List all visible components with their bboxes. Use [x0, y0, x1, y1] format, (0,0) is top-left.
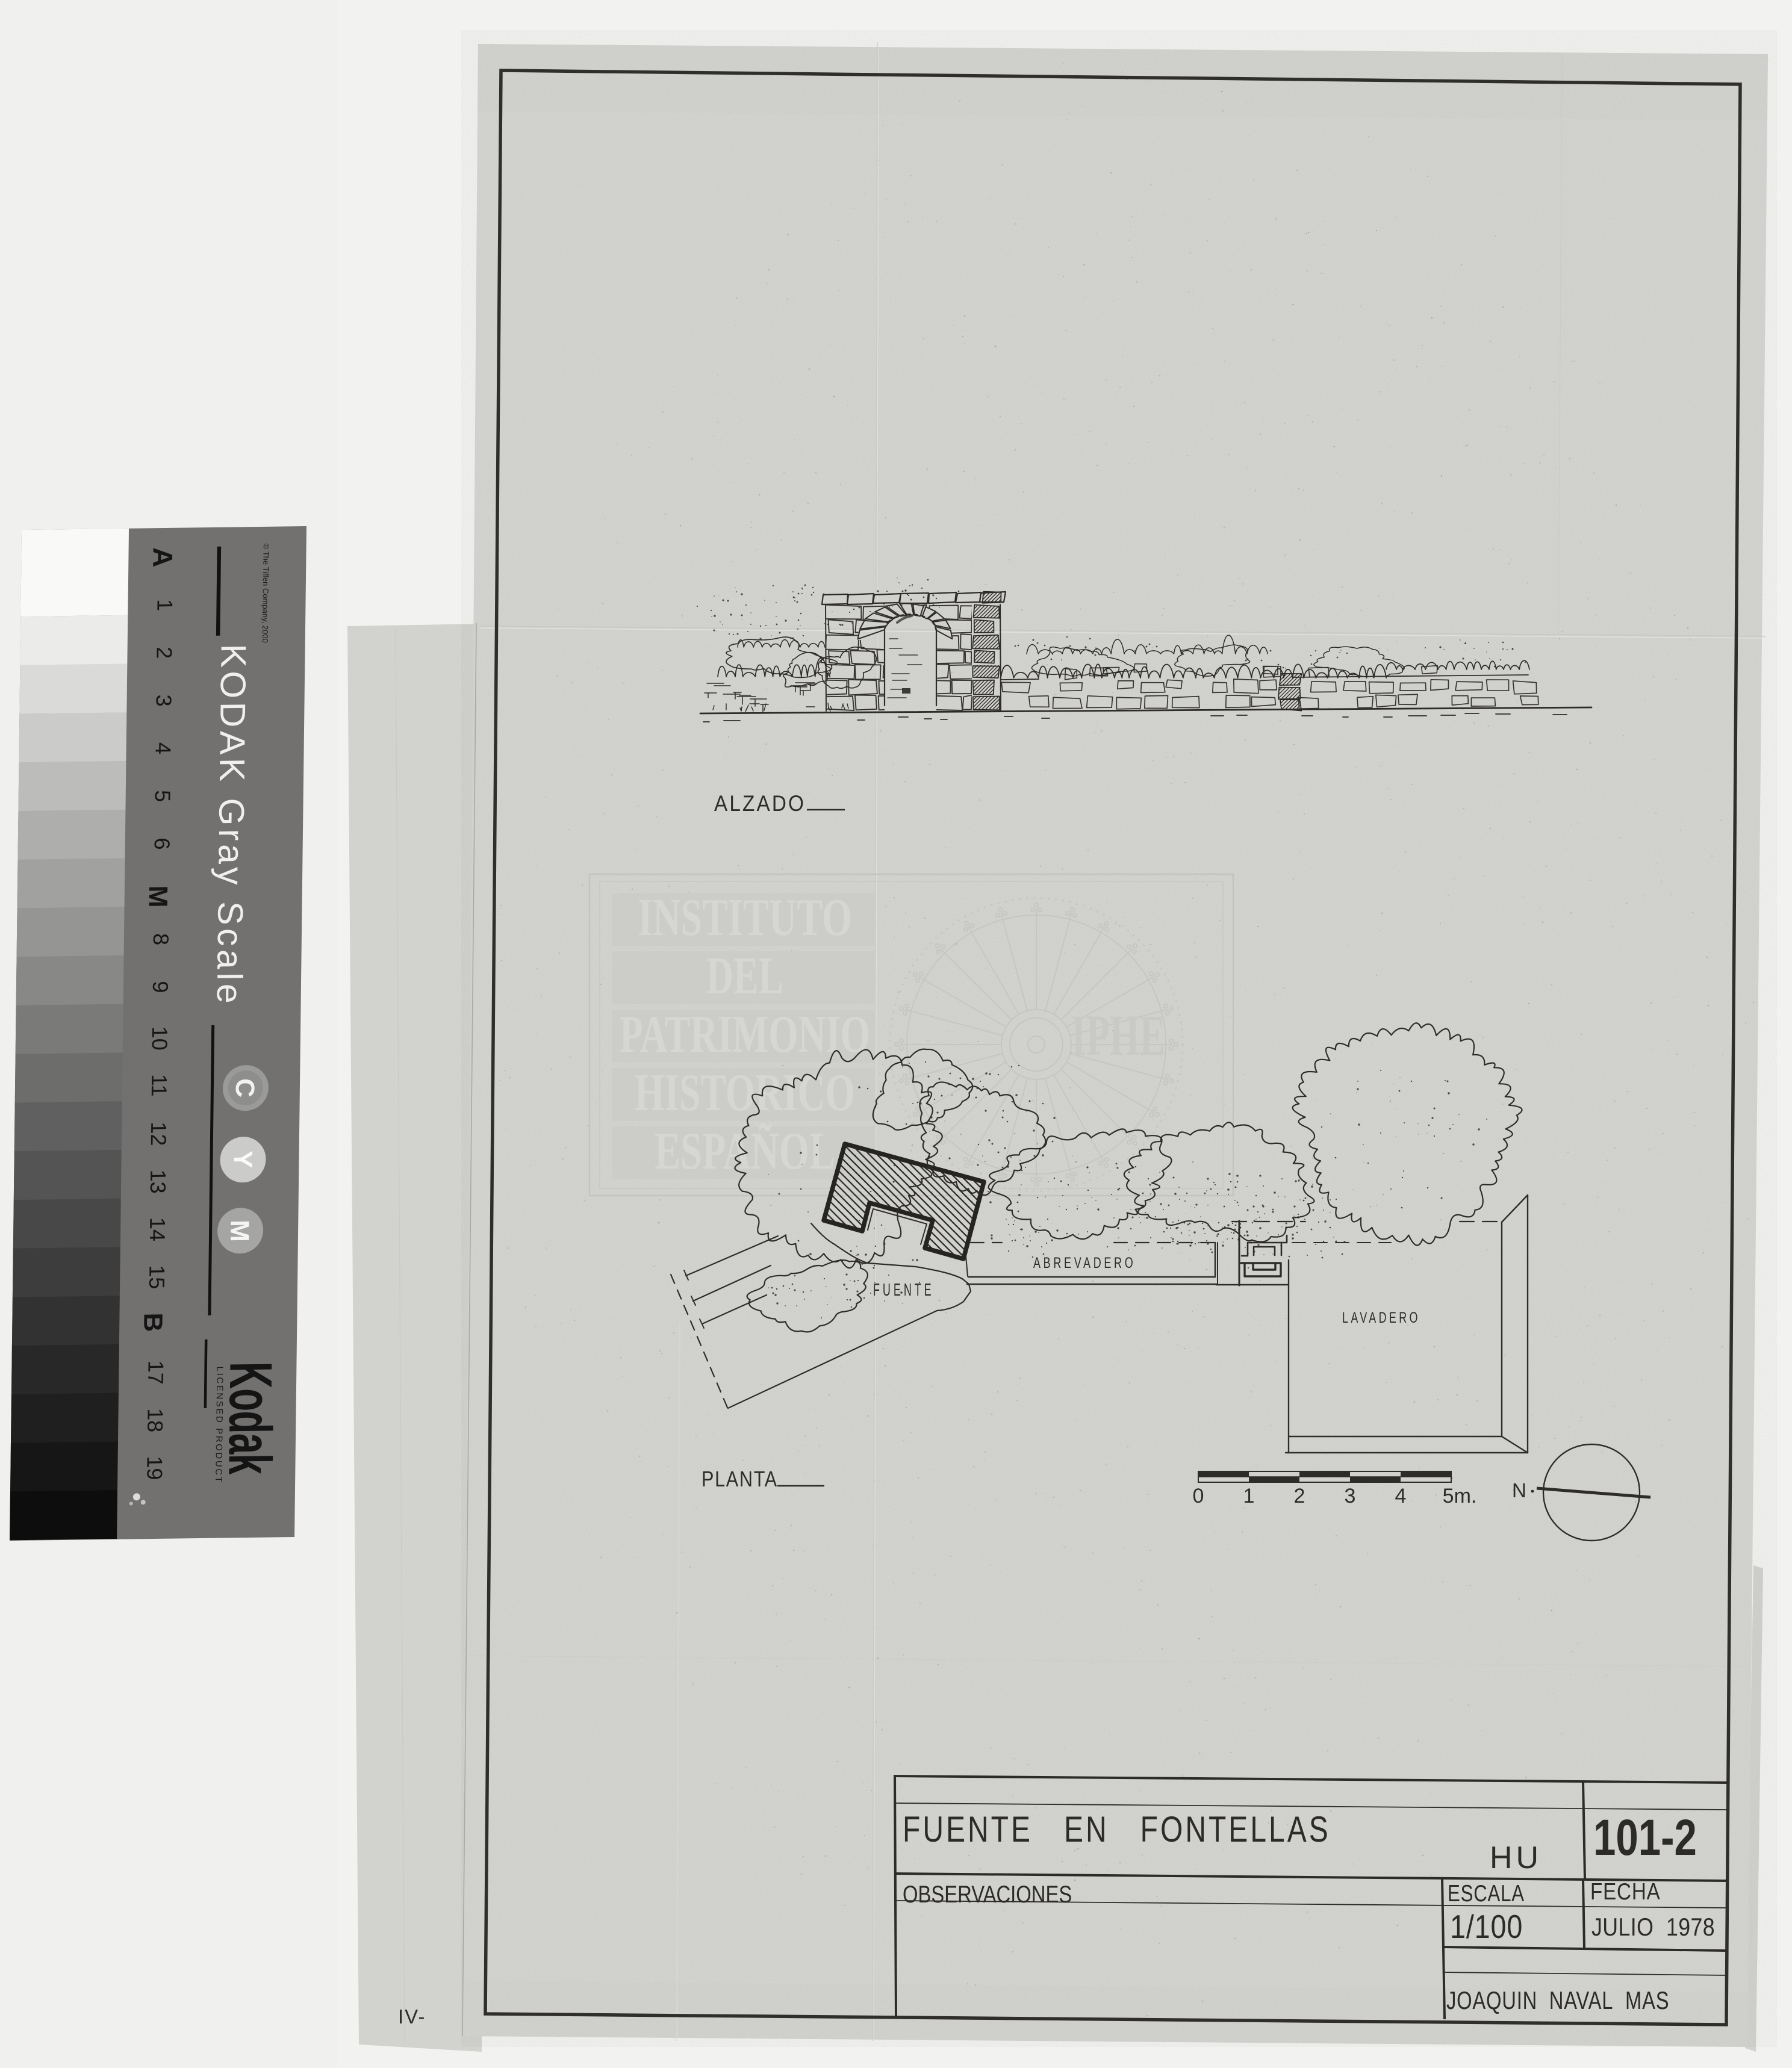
- svg-text:9: 9: [148, 981, 173, 993]
- svg-text:4: 4: [151, 742, 176, 755]
- svg-text:JOAQUIN NAVAL MAS: JOAQUIN NAVAL MAS: [1446, 1986, 1669, 2014]
- svg-text:DEL: DEL: [706, 947, 783, 1005]
- svg-text:12: 12: [146, 1122, 171, 1146]
- svg-text:ESCALA: ESCALA: [1448, 1881, 1525, 1907]
- svg-text:13: 13: [146, 1169, 170, 1194]
- svg-text:LAVADERO: LAVADERO: [1342, 1309, 1420, 1326]
- svg-text:FUENTE: FUENTE: [873, 1281, 935, 1300]
- svg-text:FUENTE EN FONTELLAS: FUENTE EN FONTELLAS: [903, 1809, 1331, 1849]
- svg-text:6: 6: [150, 837, 175, 850]
- svg-text:IPHE: IPHE: [1071, 1003, 1165, 1067]
- svg-text:14: 14: [145, 1217, 170, 1242]
- svg-text:IV-: IV-: [398, 2005, 426, 2028]
- svg-text:Kodak: Kodak: [216, 1361, 285, 1475]
- svg-text:B: B: [138, 1312, 167, 1332]
- svg-text:HU: HU: [1490, 1840, 1542, 1875]
- svg-text:FECHA: FECHA: [1590, 1878, 1661, 1904]
- svg-text:10: 10: [148, 1026, 172, 1051]
- svg-text:ALZADO: ALZADO: [714, 791, 806, 816]
- svg-text:LICENSED PRODUCT: LICENSED PRODUCT: [213, 1366, 225, 1483]
- svg-text:1/100: 1/100: [1450, 1908, 1523, 1945]
- svg-text:Y: Y: [228, 1150, 257, 1169]
- svg-text:M: M: [143, 886, 173, 908]
- svg-text:A: A: [147, 547, 178, 568]
- svg-text:KODAK Gray Scale: KODAK Gray Scale: [210, 644, 254, 1007]
- svg-text:4: 4: [1395, 1485, 1407, 1508]
- svg-text:5: 5: [151, 790, 175, 803]
- svg-text:M: M: [225, 1220, 254, 1242]
- svg-text:15: 15: [145, 1265, 169, 1290]
- svg-text:1: 1: [1243, 1485, 1255, 1508]
- svg-text:HISTORICO: HISTORICO: [635, 1064, 855, 1122]
- svg-text:PLANTA: PLANTA: [702, 1468, 778, 1492]
- svg-text:8: 8: [149, 933, 173, 946]
- svg-text:OBSERVACIONES: OBSERVACIONES: [903, 1881, 1072, 1908]
- svg-text:3: 3: [1345, 1485, 1356, 1508]
- svg-text:© The Tiffen Company, 2000: © The Tiffen Company, 2000: [261, 544, 271, 643]
- svg-text:C: C: [230, 1078, 260, 1098]
- svg-text:INSTITUTO: INSTITUTO: [638, 889, 852, 947]
- svg-text:N: N: [1512, 1479, 1526, 1501]
- svg-text:3: 3: [151, 694, 176, 707]
- svg-text:101-2: 101-2: [1593, 1810, 1697, 1866]
- svg-text:5m.: 5m.: [1443, 1485, 1477, 1508]
- svg-text:2: 2: [1294, 1485, 1305, 1508]
- svg-text:2: 2: [152, 647, 176, 659]
- svg-text:JULIO 1978: JULIO 1978: [1591, 1913, 1715, 1941]
- svg-text:17: 17: [143, 1361, 168, 1385]
- svg-text:19: 19: [142, 1456, 167, 1480]
- svg-text:1: 1: [152, 599, 177, 612]
- svg-text:0: 0: [1193, 1485, 1204, 1508]
- svg-text:18: 18: [143, 1408, 167, 1433]
- svg-text:11: 11: [147, 1074, 172, 1097]
- svg-text:ABREVADERO: ABREVADERO: [1033, 1254, 1136, 1272]
